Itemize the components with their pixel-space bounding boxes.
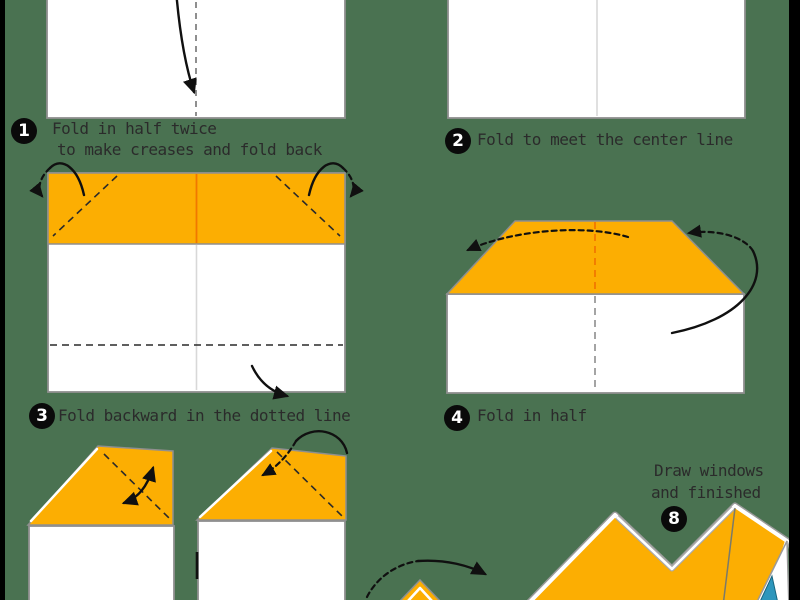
step4-source-diagram — [447, 221, 757, 393]
turn-over-arrow-icon — [418, 561, 485, 574]
step1-diagram — [47, 0, 345, 118]
step8-label-line1: Draw windows — [654, 461, 764, 481]
right-black-bar — [789, 0, 800, 600]
origami-instruction-sheet: 1 2 3 4 8 Fold in half twice to make cre… — [0, 0, 800, 600]
orange-roof — [197, 448, 346, 520]
step4-number: 4 — [451, 408, 463, 428]
step3-badge: 3 — [29, 403, 55, 429]
step3-number: 3 — [36, 406, 48, 426]
step5-diagram-left — [28, 446, 174, 600]
step4-badge: 4 — [444, 405, 470, 431]
left-black-bar — [0, 0, 5, 600]
step8-label-line2: and finished — [651, 483, 761, 503]
paper-body — [198, 521, 345, 600]
paper-body — [29, 526, 174, 600]
step3-label: Fold backward in the dotted line — [58, 406, 350, 426]
small-orange-peak — [400, 580, 440, 600]
turn-over-diagram — [367, 561, 485, 600]
step2-diagram — [448, 0, 745, 118]
step3-source-diagram — [39, 163, 353, 396]
step5-diagram-right — [197, 431, 347, 600]
step1-number: 1 — [18, 121, 30, 141]
step1-label-line2: to make creases and fold back — [57, 140, 322, 160]
step2-label: Fold to meet the center line — [477, 130, 733, 150]
orange-roof — [28, 446, 173, 525]
step2-number: 2 — [452, 131, 464, 151]
step8-badge: 8 — [661, 506, 687, 532]
step2-badge: 2 — [445, 128, 471, 154]
finished-house-diagram — [524, 506, 789, 600]
fold-behind-loop-arrow-icon — [296, 431, 347, 453]
step1-badge: 1 — [11, 118, 37, 144]
step8-number: 8 — [668, 509, 680, 529]
step1-label-line1: Fold in half twice — [52, 119, 216, 139]
step4-label: Fold in half — [477, 406, 587, 426]
